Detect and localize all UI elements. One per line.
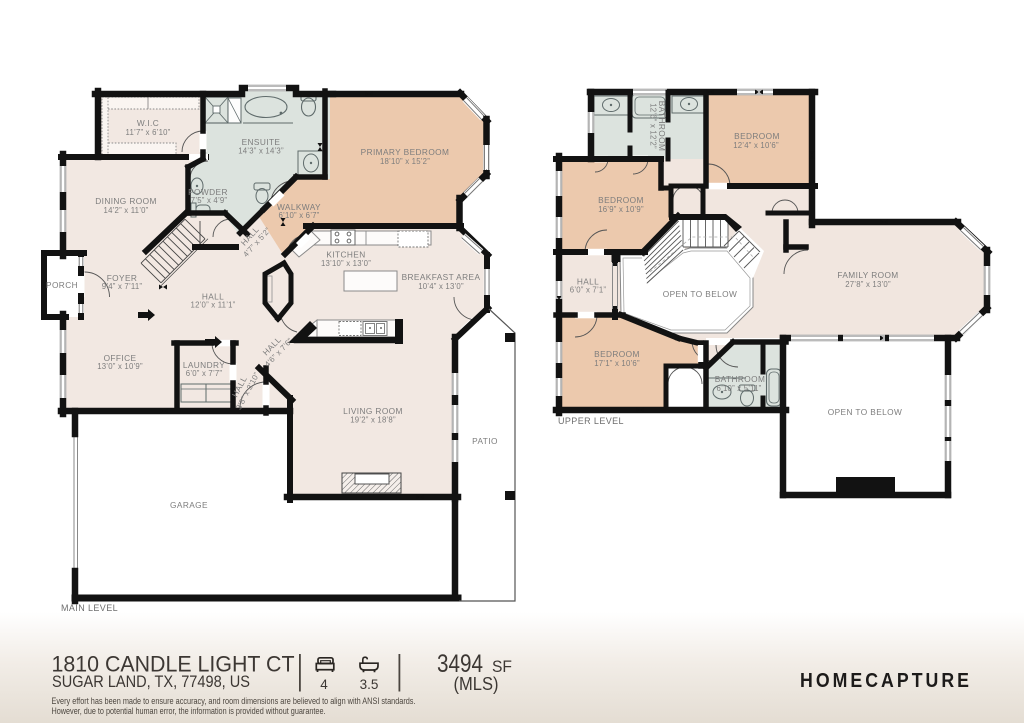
svg-text:BEDROOM: BEDROOM: [734, 131, 780, 141]
svg-text:10’4” x 13’0”: 10’4” x 13’0”: [418, 282, 464, 291]
svg-text:W.I.C: W.I.C: [137, 118, 159, 128]
svg-text:SUGAR LAND, TX, 77498, US: SUGAR LAND, TX, 77498, US: [52, 673, 250, 691]
svg-text:UPPER LEVEL: UPPER LEVEL: [558, 416, 624, 426]
svg-text:OPEN TO BELOW: OPEN TO BELOW: [663, 289, 738, 299]
svg-text:6’10” x 5’11”: 6’10” x 5’11”: [717, 384, 762, 393]
svg-text:13’10” x 13’0”: 13’10” x 13’0”: [321, 259, 371, 268]
svg-text:OPEN TO BELOW: OPEN TO BELOW: [828, 407, 903, 417]
svg-text:3.5: 3.5: [360, 677, 379, 692]
svg-text:PORCH: PORCH: [46, 280, 78, 290]
svg-text:19’2” x 18’8”: 19’2” x 18’8”: [350, 416, 396, 425]
svg-text:7’5” x 4’9”: 7’5” x 4’9”: [191, 196, 228, 205]
svg-text:BATHROOM: BATHROOM: [657, 101, 667, 152]
svg-text:However, due to potential huma: However, due to potential human error, t…: [52, 706, 326, 716]
svg-text:BREAKFAST AREA: BREAKFAST AREA: [402, 272, 481, 282]
svg-text:12’4” x 10’6”: 12’4” x 10’6”: [733, 141, 779, 150]
svg-text:16’9” x 10’9”: 16’9” x 10’9”: [598, 205, 644, 214]
svg-text:LIVING ROOM: LIVING ROOM: [343, 406, 403, 416]
svg-text:BEDROOM: BEDROOM: [594, 349, 640, 359]
svg-text:MAIN LEVEL: MAIN LEVEL: [61, 603, 118, 613]
svg-text:ENSUITE: ENSUITE: [242, 137, 281, 147]
svg-text:KITCHEN: KITCHEN: [326, 250, 365, 260]
svg-text:FAMILY ROOM: FAMILY ROOM: [837, 270, 898, 280]
svg-text:PATIO: PATIO: [472, 436, 498, 446]
svg-text:14’2” x 11’0”: 14’2” x 11’0”: [104, 206, 149, 215]
svg-text:4: 4: [320, 677, 328, 692]
svg-text:(MLS): (MLS): [454, 673, 499, 694]
svg-text:GARAGE: GARAGE: [170, 500, 208, 510]
svg-text:12’6” x 12’2”: 12’6” x 12’2”: [649, 103, 658, 149]
svg-text:18’10” x 15’2”: 18’10” x 15’2”: [380, 157, 430, 166]
svg-text:12’0” x 11’1”: 12’0” x 11’1”: [191, 301, 236, 310]
svg-text:BATHROOM: BATHROOM: [715, 374, 766, 384]
svg-text:6’0” x 7’1”: 6’0” x 7’1”: [570, 286, 607, 295]
svg-text:Every effort has been made to: Every effort has been made to ensure acc…: [52, 696, 416, 706]
svg-text:6’0” x 7’7”: 6’0” x 7’7”: [186, 369, 223, 378]
svg-text:11’7” x 6’10”: 11’7” x 6’10”: [126, 128, 171, 137]
svg-text:13’0” x 10’9”: 13’0” x 10’9”: [97, 362, 143, 371]
svg-text:6’10” x 6’7”: 6’10” x 6’7”: [279, 211, 320, 220]
svg-text:17’1” x 10’6”: 17’1” x 10’6”: [594, 359, 640, 368]
svg-text:DINING ROOM: DINING ROOM: [95, 196, 157, 206]
svg-text:PRIMARY BEDROOM: PRIMARY BEDROOM: [361, 147, 450, 157]
svg-text:BEDROOM: BEDROOM: [598, 195, 644, 205]
svg-text:14’3” x 14’3”: 14’3” x 14’3”: [238, 147, 284, 156]
svg-text:9’4” x 7’11”: 9’4” x 7’11”: [102, 282, 143, 291]
svg-text:27’8” x 13’0”: 27’8” x 13’0”: [845, 280, 891, 289]
svg-text:HOMECAPTURE: HOMECAPTURE: [800, 669, 972, 692]
